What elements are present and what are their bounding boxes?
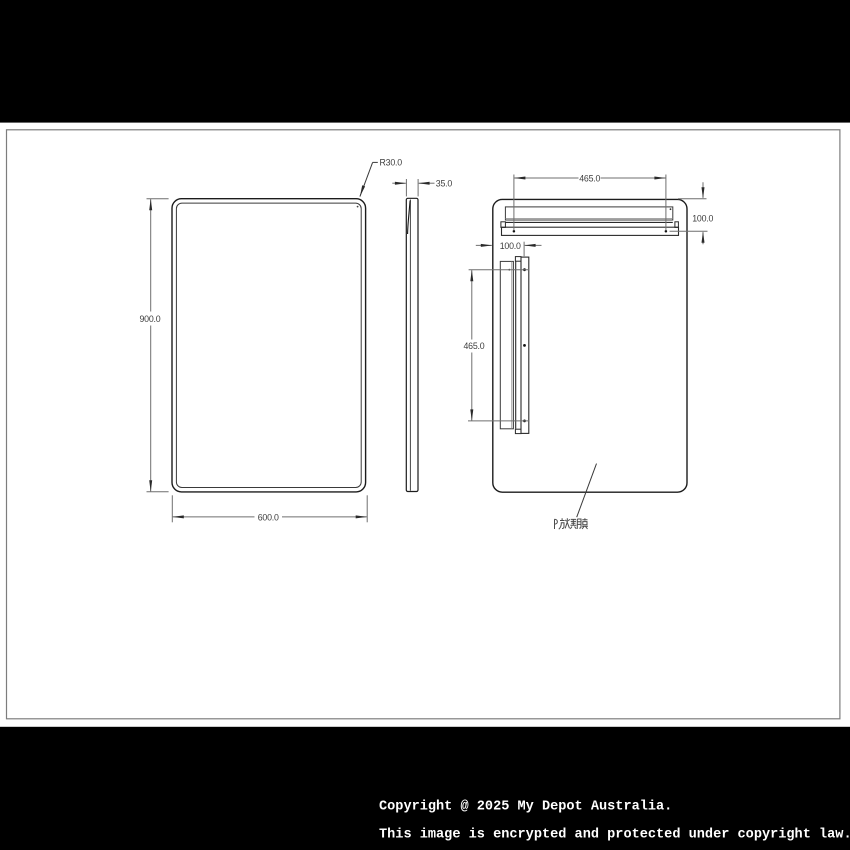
svg-text:This image is encrypted and pr: This image is encrypted and protected un…	[379, 827, 850, 842]
svg-text:900.0: 900.0	[139, 314, 160, 324]
svg-text:600.0: 600.0	[258, 512, 279, 522]
svg-text:465.0: 465.0	[579, 174, 600, 184]
svg-text:Copyright @ 2025 My Depot Aust: Copyright @ 2025 My Depot Australia.	[379, 799, 672, 814]
svg-text:35.0: 35.0	[436, 179, 453, 189]
svg-text:100.0: 100.0	[692, 214, 713, 224]
svg-text:R30.0: R30.0	[380, 157, 403, 167]
svg-text:100.0: 100.0	[500, 241, 521, 251]
svg-text:465.0: 465.0	[463, 341, 484, 351]
